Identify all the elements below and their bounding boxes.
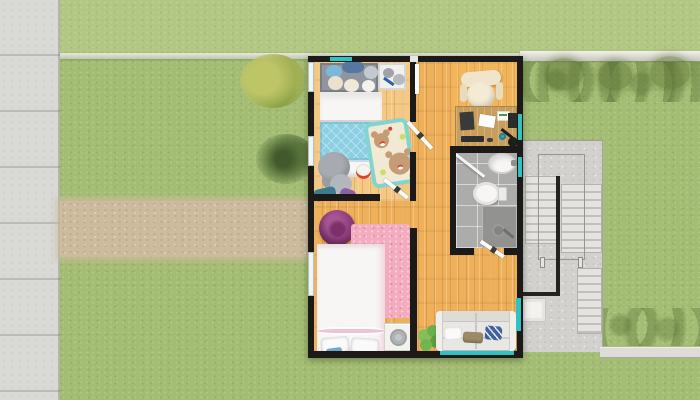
sofa [436,311,516,351]
desk-mouse [487,138,493,142]
utility-panel [521,298,546,322]
window-bathroom [518,157,522,177]
wall-bathroom-left [450,146,456,254]
window-top [330,57,352,61]
front-door-opening [308,62,314,92]
desk-notebook [508,113,517,128]
throw-pillow-white [444,326,463,340]
wall-exterior-left [308,56,314,358]
railing-post [540,257,545,268]
hedge-shrub-band-bottom [598,308,700,346]
desk-pad [459,112,474,131]
throw-pillow-taupe [463,331,484,343]
tree-canopy [598,61,632,90]
wall-bathroom-bottom [504,248,517,255]
wall-bathroom-bottom [450,248,474,255]
door-open-against-wall [415,64,419,94]
stair-wall-rail-horizontal [521,292,560,296]
desk-papers [478,114,496,128]
wall-master-bedroom [410,228,417,351]
plush-toy [362,80,375,92]
plant-leaf [420,339,432,351]
floor-plan-render [0,0,700,400]
concrete-sidewalk-left [0,0,60,400]
window-bottom-living [440,351,514,355]
railing-post [578,257,583,268]
office-chair-seat [467,82,495,108]
rug-dot [388,126,393,131]
sofa-armrest [436,311,443,351]
office-chair-arm [496,82,503,100]
washing-machine-door [390,329,407,346]
tree-canopy [650,56,690,89]
sidewalk-bottom-right [600,347,700,358]
window-office [518,114,522,140]
toilet-tank [498,187,507,201]
wall-kids-bedroom [410,152,416,201]
master-bed [317,244,385,351]
kids-bed-sheet [320,92,382,122]
house-floor-plan [308,56,523,358]
dirt-path [60,201,308,257]
window-living [516,298,521,331]
yellow-bush [240,54,306,108]
dark-palm-plant [256,134,316,184]
bed-pink-trim [317,327,385,335]
tree-canopy [545,58,583,90]
plush-toy [328,76,343,90]
toilet [473,182,500,205]
rug-dot [380,169,387,176]
desk-keyboard [461,136,484,142]
wall-between-bedrooms [308,194,380,201]
window-kids-bedroom [308,136,314,166]
stair-railing-outline [538,154,585,260]
headboard-shelf [320,63,378,92]
office-chair-arm [460,84,467,102]
purple-pouf [319,210,355,246]
wall-office-bathroom [450,146,517,153]
washing-machine [384,323,412,351]
window-master-bedroom [308,252,314,296]
wall-opening-top [410,56,418,62]
rug-dot [399,133,406,140]
office-desk [455,106,517,147]
upper-lawn-strip [60,0,700,52]
sofa-armrest [509,311,516,351]
plush-toy [344,79,359,92]
throw-pillow-blue-pattern [484,325,502,340]
plush-toy [364,66,378,79]
stair-wall-rail-vertical [556,176,560,296]
plush-navy-pillow [342,61,364,73]
toy-crate [378,63,406,90]
stair-flight-lower [577,268,602,334]
plush-penguin [356,164,371,179]
sofa-cushion-split [475,313,477,349]
